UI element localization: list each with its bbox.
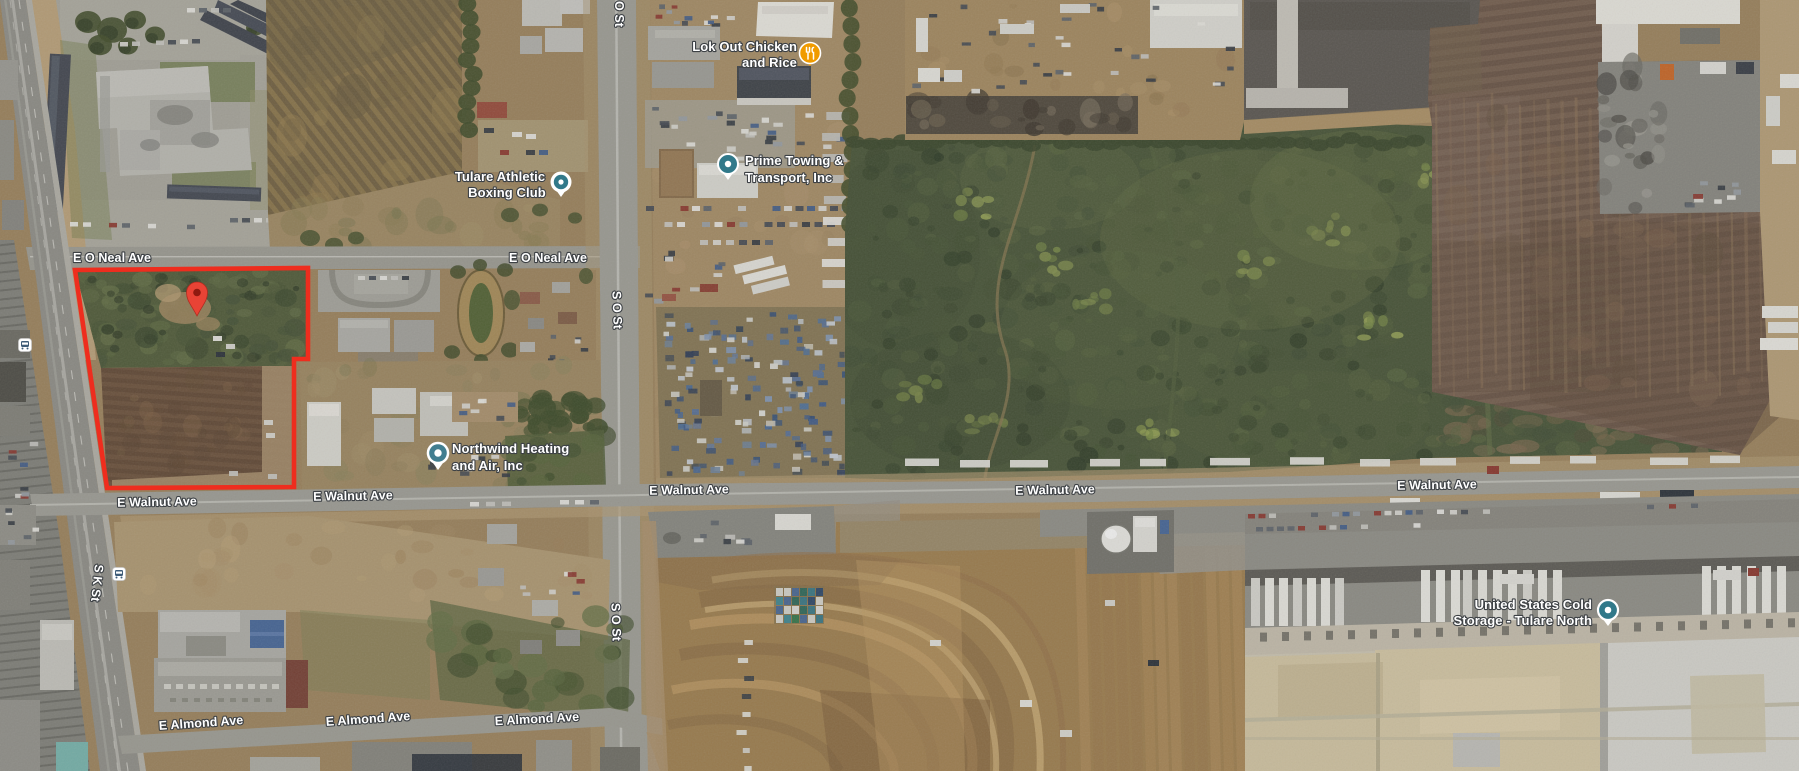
svg-text:E Walnut Ave: E Walnut Ave — [117, 494, 197, 509]
svg-text:and Rice: and Rice — [742, 55, 797, 70]
svg-text:Boxing Club: Boxing Club — [468, 185, 546, 200]
svg-text:Transport, Inc: Transport, Inc — [745, 170, 832, 185]
svg-text:United States Cold: United States Cold — [1475, 597, 1592, 612]
svg-text:E O Neal Ave: E O Neal Ave — [509, 251, 587, 265]
svg-text:E O Neal Ave: E O Neal Ave — [73, 251, 151, 265]
svg-text:E Walnut Ave: E Walnut Ave — [313, 488, 393, 503]
svg-text:and Air, Inc: and Air, Inc — [452, 458, 523, 473]
svg-text:S O St: S O St — [608, 603, 623, 642]
svg-text:Lok Out Chicken: Lok Out Chicken — [692, 39, 797, 54]
svg-text:S O St: S O St — [612, 0, 626, 28]
svg-text:E Walnut Ave: E Walnut Ave — [649, 482, 729, 497]
svg-text:Prime Towing &: Prime Towing & — [745, 153, 844, 168]
svg-text:S O St: S O St — [609, 291, 624, 330]
svg-text:Northwind Heating: Northwind Heating — [452, 441, 569, 456]
svg-text:E Walnut Ave: E Walnut Ave — [1397, 477, 1477, 492]
svg-text:E Walnut Ave: E Walnut Ave — [1015, 482, 1095, 497]
svg-text:Storage - Tulare North: Storage - Tulare North — [1454, 613, 1592, 628]
svg-text:Tulare Athletic: Tulare Athletic — [455, 169, 545, 184]
